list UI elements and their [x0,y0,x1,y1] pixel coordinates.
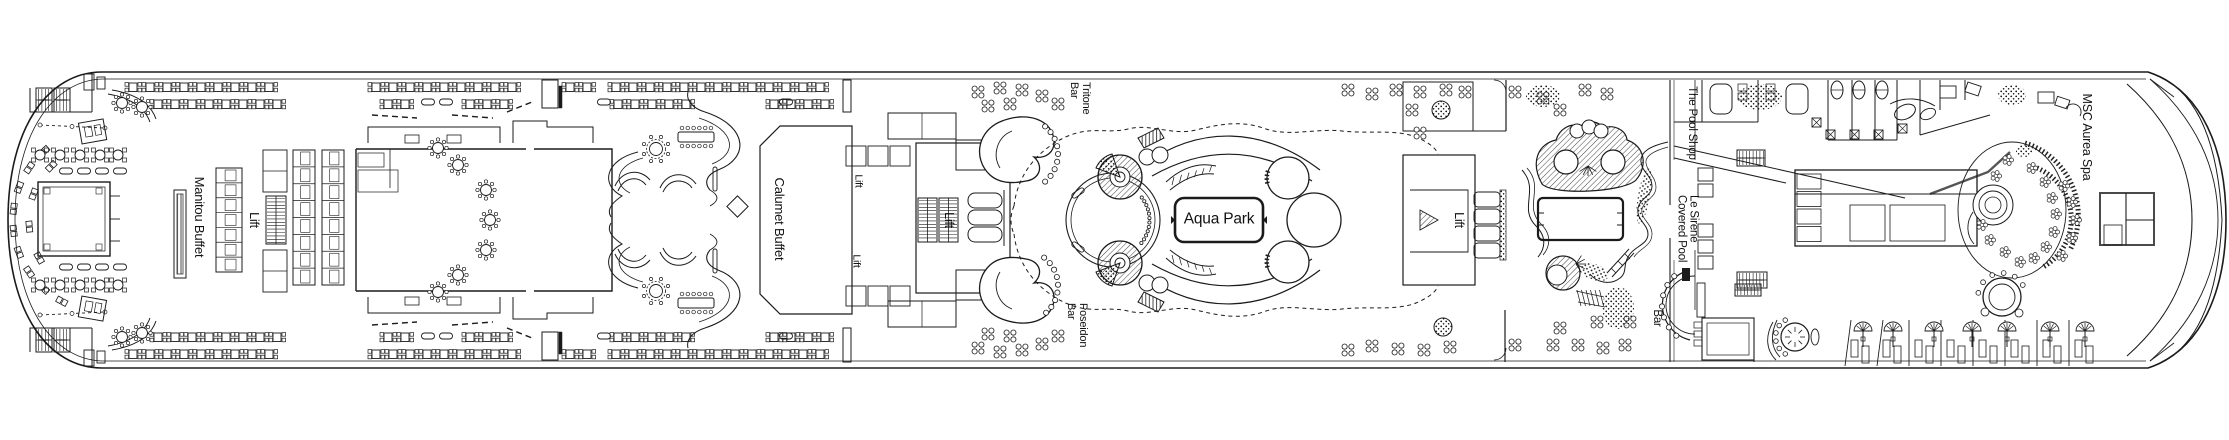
tritone-poseidon-bars [980,117,1055,323]
label-tritone-bar: Tritone Bar [1067,82,1091,122]
label-calumet-buffet: Calumet Buffet [772,178,786,261]
label-pool-bar: Bar [1651,309,1663,326]
lift-label-calumet-bottom: Lift [850,254,861,267]
deck-plan-drawing [0,0,2229,440]
label-le-sirene-covered-pool: Le Sirene Covered Pool [1675,195,1700,263]
lift-label-midship: Lift [941,212,955,228]
label-the-pool-shop: The Pool Shop [1686,86,1698,159]
midship-lift-lobby [843,80,1024,362]
label-poseidon-bar: Poseidon Bar [1064,303,1088,353]
lift-label-stern: Lift [246,212,260,228]
lift-label-pool-deck: Lift [1451,212,1465,228]
label-msc-aurea-spa: MSC Aurea Spa [2079,93,2093,180]
label-aqua-park: Aqua Park [1184,212,1255,229]
galley-block [356,80,612,360]
calumet-buffet-area [609,92,910,348]
stern-dining-area [30,73,156,367]
label-manitou-buffet: Manitou Buffet [192,177,206,258]
deck-furniture [10,82,2094,368]
lift-label-calumet-top: Lift [852,174,863,187]
deck-plan: Manitou Buffet Lift Calumet Buffet Lift … [0,0,2229,440]
